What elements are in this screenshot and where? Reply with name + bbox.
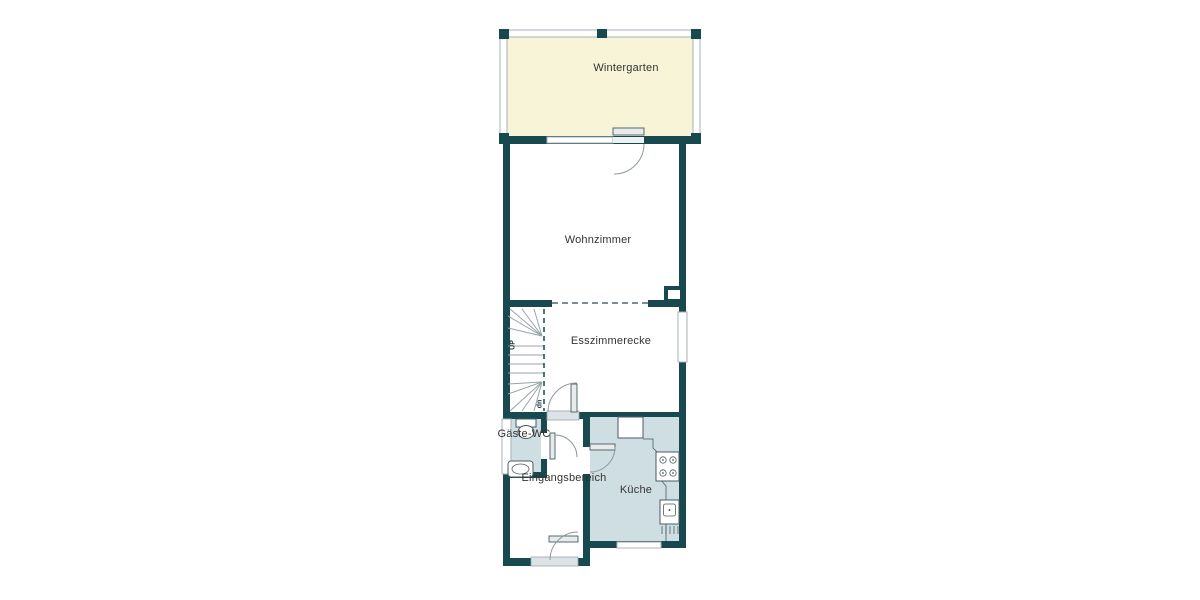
wintergarten-post-top-left [499,29,509,39]
room-wintergarten [499,29,701,144]
room-label-wintergarten: Wintergarten [593,62,658,74]
kitchen-door-opening [583,447,590,474]
wintergarten-glass-wall-left [500,30,507,140]
room-label-wohnzimmer: Wohnzimmer [565,234,632,246]
wintergarten-post-top-middle [597,29,607,38]
stove-icon [656,452,679,481]
divider-wall-left-stub [503,300,552,307]
floor-plan-canvas: Wintergarten Wohnzimmer Esszimmerecke Gä… [0,0,1200,600]
kitchen-door-leaf [590,444,615,450]
floor-plan-drawing [0,0,1200,600]
staircase [508,309,544,411]
wintergarten-door-arc [614,144,644,174]
wc-door-leaf [550,433,555,459]
house-wall-left [503,140,510,566]
stair-up-label: UP [510,340,517,350]
kitchen-window-bottom [617,542,661,548]
hall-kitchen-wall [583,412,590,566]
room-label-eingangsbereich: Eingangsbereich [522,472,607,484]
wintergarten-door-opening [613,137,644,143]
room-label-esszimmerecke: Esszimmerecke [571,335,651,347]
dining-wall-bottom-left [503,412,547,419]
wintergarten-post-top-right [691,29,701,39]
wc-door-arc [555,435,577,457]
stair-treads [508,309,544,411]
dining-door-leaf [571,384,577,412]
room-label-kueche: Küche [620,484,652,496]
entrance-door-threshold [531,557,578,566]
chimney-flue [668,290,680,299]
stair-down-label: dn [537,400,544,409]
wintergarten-floor [507,37,693,136]
living-room-window-top [547,137,613,143]
entrance-door-leaf [549,536,578,542]
dining-window-right [678,312,687,362]
wintergarten-door-leaf [613,128,644,135]
fridge-icon [618,417,643,438]
room-label-gaeste-wc: Gäste-WC [498,428,551,440]
wintergarten-glass-wall-right [693,30,700,140]
